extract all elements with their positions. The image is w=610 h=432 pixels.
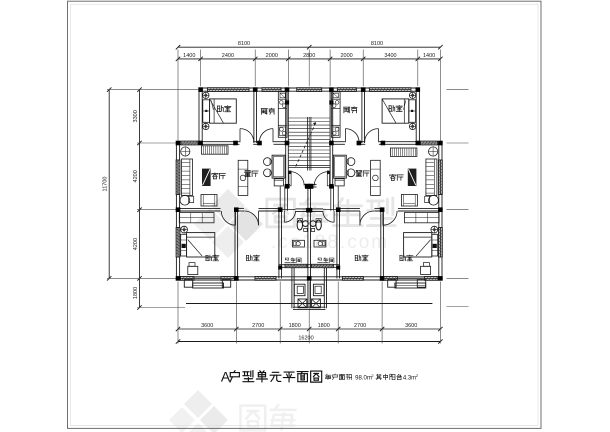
svg-text:.co188.com: .co188.com [271, 232, 389, 253]
svg-text:1800: 1800 [289, 323, 301, 329]
svg-text:4200: 4200 [133, 238, 139, 250]
svg-text:98.0m: 98.0m [355, 375, 372, 381]
svg-text:2000: 2000 [340, 53, 352, 59]
svg-text:3600: 3600 [405, 323, 417, 329]
svg-text:3600: 3600 [201, 323, 213, 329]
svg-text:16200: 16200 [298, 336, 313, 342]
svg-text:3300: 3300 [133, 110, 139, 122]
svg-text:1400: 1400 [183, 53, 195, 59]
svg-text:1400: 1400 [423, 53, 435, 59]
svg-text:8100: 8100 [238, 41, 250, 47]
svg-text:2700: 2700 [252, 323, 264, 329]
svg-text:2400: 2400 [222, 53, 234, 59]
svg-text:3400: 3400 [384, 53, 396, 59]
svg-text:1800: 1800 [133, 287, 139, 299]
svg-text:1800: 1800 [318, 323, 330, 329]
svg-text:2000: 2000 [266, 53, 278, 59]
svg-text:2700: 2700 [354, 323, 366, 329]
svg-text:8100: 8100 [371, 41, 383, 47]
svg-text:4200: 4200 [133, 170, 139, 182]
svg-text:A: A [221, 369, 231, 385]
svg-text:11700: 11700 [103, 177, 109, 192]
svg-text:4.3m: 4.3m [403, 375, 416, 381]
